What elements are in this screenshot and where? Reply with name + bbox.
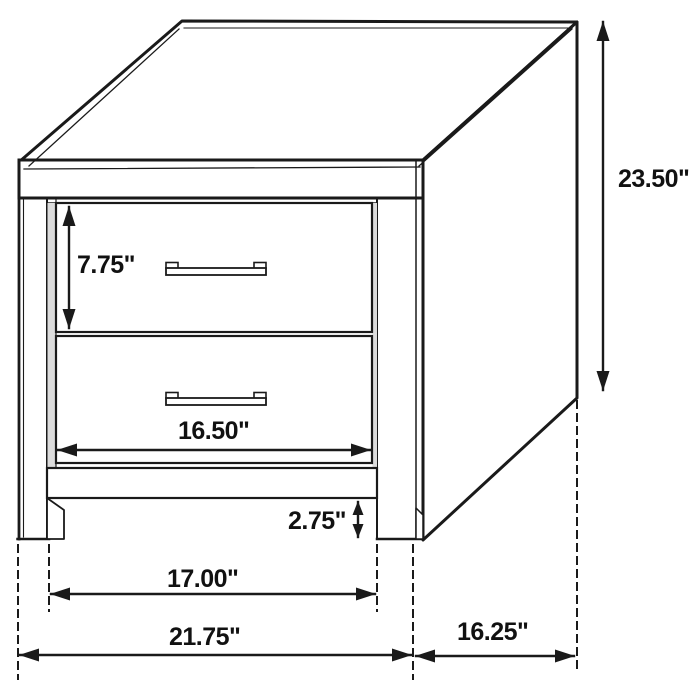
- dimension-label-inner-leg-span: 17.00": [167, 567, 238, 592]
- dimension-label-overall-height: 23.50": [618, 167, 689, 192]
- dimension-diagram: 7.75" 23.50" 16.50" 2.75" 17.00" 21.75" …: [0, 0, 700, 700]
- right-drawer-reveal: [373, 203, 378, 497]
- left-drawer-reveal: [48, 203, 57, 497]
- dimension-label-drawer-width: 16.50": [178, 419, 249, 444]
- handle-bar: [166, 268, 266, 275]
- dimension-label-leg-clearance: 2.75": [288, 509, 346, 534]
- dimension-label-top-drawer-height: 7.75": [77, 253, 135, 278]
- bottom-rail: [47, 468, 377, 498]
- dimension-label-overall-depth: 16.25": [457, 620, 528, 645]
- top-rail: [19, 160, 423, 198]
- handle-bar: [166, 398, 266, 405]
- nightstand-line-drawing: [0, 0, 700, 700]
- left-leg-inner-face: [47, 498, 64, 539]
- dimension-label-overall-width: 21.75": [169, 625, 240, 650]
